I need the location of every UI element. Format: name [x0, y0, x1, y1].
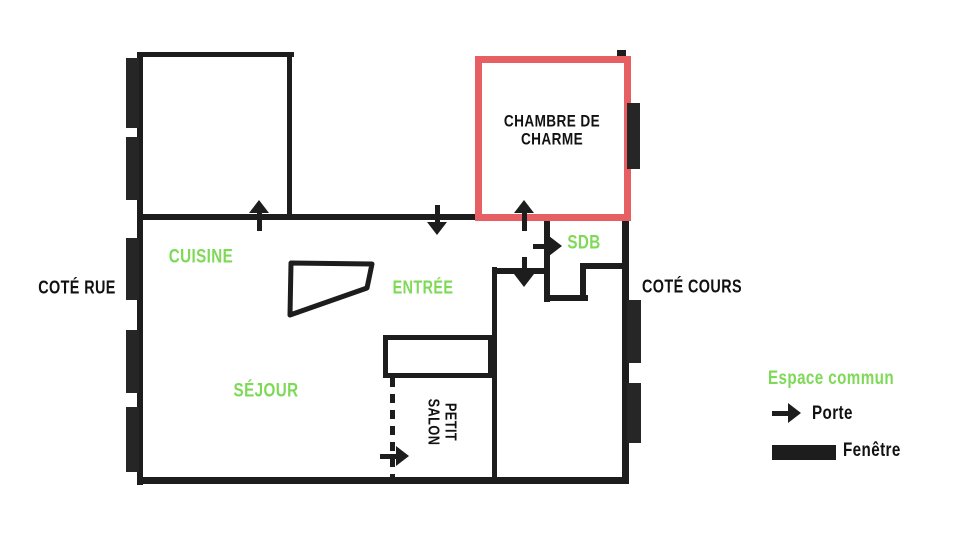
legend-door-arrow-icon: [772, 403, 804, 423]
door-arrow-icon: [514, 257, 534, 290]
room-label-chambre: CHAMBRE DE CHARME: [504, 113, 600, 150]
window-icon: [627, 103, 640, 169]
door-arrow-icon: [380, 446, 412, 466]
petit-salon-counter: [383, 335, 493, 378]
door-arrow-icon: [533, 236, 565, 256]
door-arrow-icon: [249, 197, 269, 232]
room-label-sdb: SDB: [567, 234, 600, 255]
floor-plan: CHAMBRE DE CHARME CUISINE ENTRÉE SDB SÉJ…: [0, 0, 960, 540]
door-arrow-icon: [514, 197, 534, 232]
door-arrow-icon: [427, 205, 447, 238]
